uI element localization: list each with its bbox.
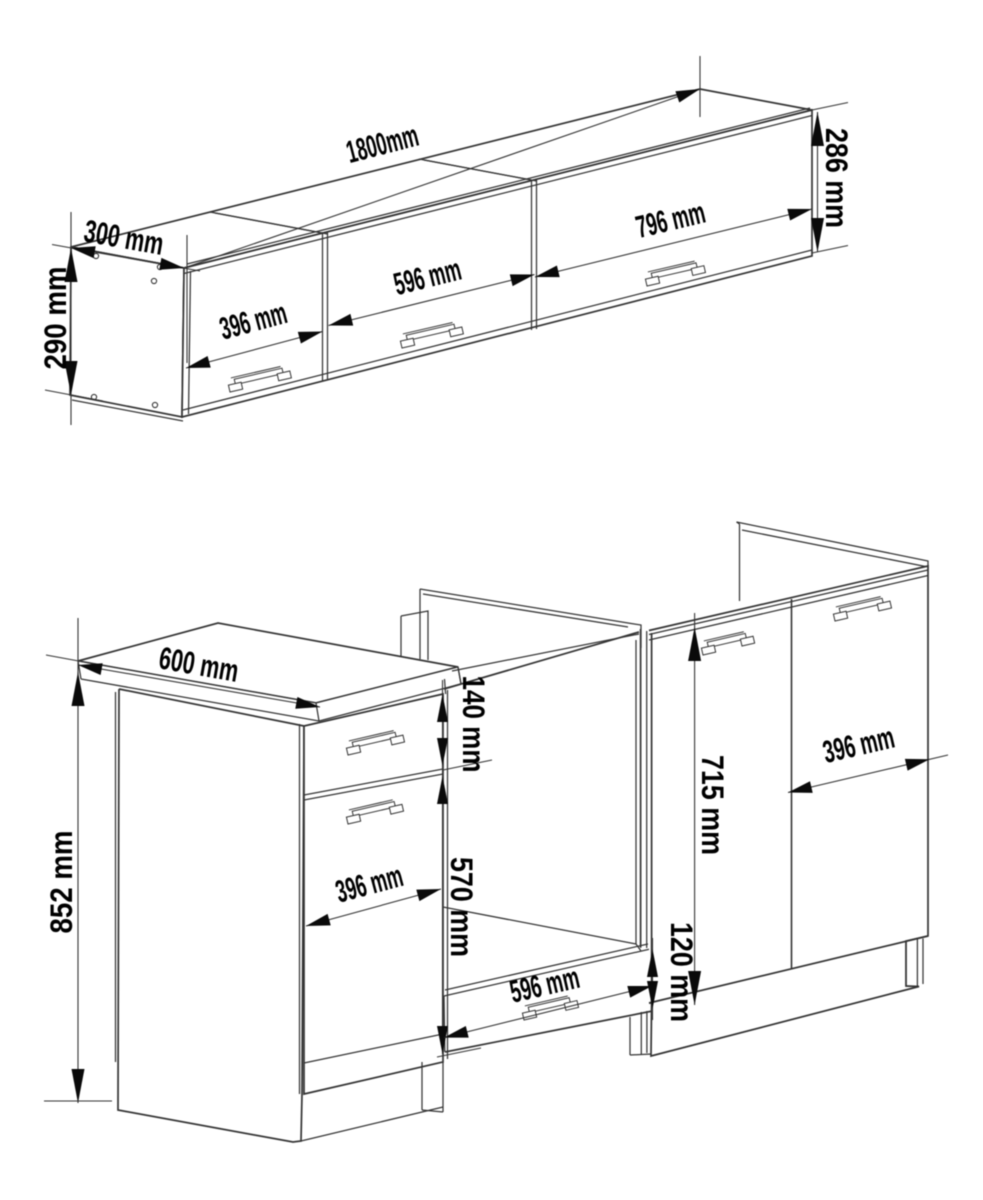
svg-text:852 mm: 852 mm xyxy=(43,831,79,934)
svg-text:286 mm: 286 mm xyxy=(819,128,855,228)
svg-text:570 mm: 570 mm xyxy=(444,857,480,957)
svg-text:140 mm: 140 mm xyxy=(456,676,492,773)
svg-text:715 mm: 715 mm xyxy=(695,755,731,855)
svg-text:290 mm: 290 mm xyxy=(37,267,73,370)
